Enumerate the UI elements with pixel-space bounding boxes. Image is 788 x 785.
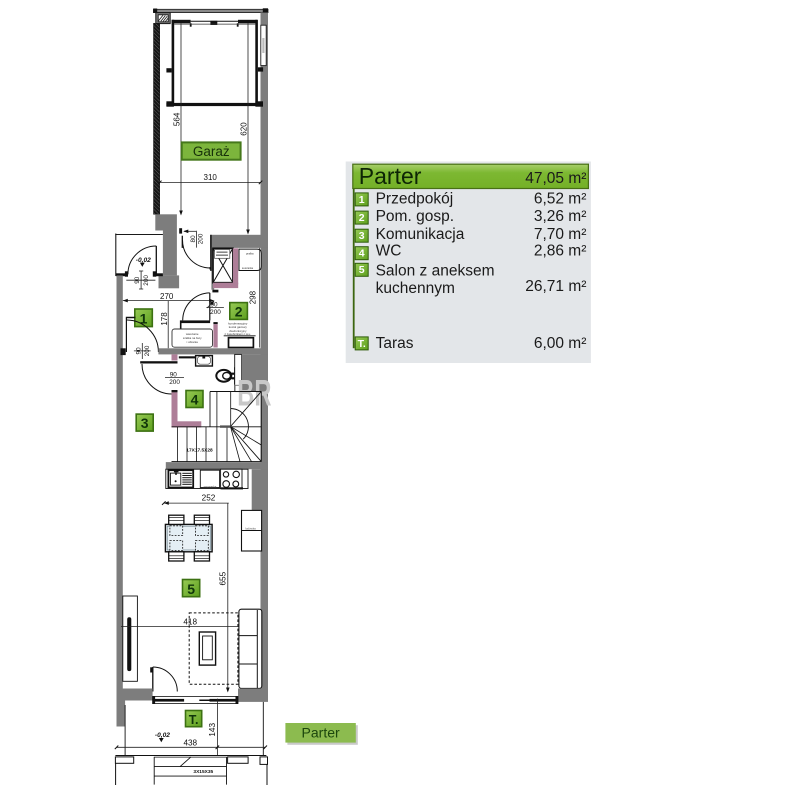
svg-text:200: 200 — [143, 275, 150, 286]
svg-text:suszarka: suszarka — [242, 266, 254, 270]
svg-text:90: 90 — [210, 301, 218, 308]
svg-text:Komunikacja: Komunikacja — [376, 226, 465, 243]
svg-text:6,52 m²: 6,52 m² — [534, 190, 587, 207]
svg-text:WC: WC — [376, 243, 402, 260]
svg-text:Parter: Parter — [359, 163, 422, 189]
svg-text:178: 178 — [160, 312, 169, 326]
svg-text:200: 200 — [197, 233, 204, 244]
svg-text:5: 5 — [187, 581, 195, 597]
svg-text:3: 3 — [359, 230, 365, 242]
svg-text:BR: BR — [237, 372, 271, 414]
svg-text:80: 80 — [190, 235, 197, 243]
svg-text:i ubrania: i ubrania — [187, 340, 198, 344]
svg-text:90: 90 — [136, 347, 143, 355]
svg-text:1: 1 — [140, 311, 148, 327]
svg-text:4: 4 — [359, 248, 365, 260]
svg-text:2,86 m²: 2,86 m² — [534, 243, 587, 260]
svg-text:3: 3 — [141, 415, 149, 431]
svg-text:Pom. gosp.: Pom. gosp. — [376, 208, 454, 225]
svg-text:90: 90 — [170, 371, 178, 378]
svg-text:200: 200 — [144, 345, 151, 356]
svg-text:26,71 m²: 26,71 m² — [525, 278, 586, 295]
svg-text:143: 143 — [208, 723, 217, 737]
svg-text:5: 5 — [359, 264, 365, 276]
svg-text:2: 2 — [359, 212, 365, 224]
svg-text:6,00 m²: 6,00 m² — [534, 335, 587, 352]
svg-text:4: 4 — [191, 392, 199, 408]
svg-text:pralka: pralka — [246, 251, 254, 255]
svg-text:2: 2 — [235, 304, 243, 320]
svg-text:3X15X35: 3X15X35 — [193, 769, 213, 775]
svg-text:17X17.5X28: 17X17.5X28 — [186, 447, 213, 453]
svg-text:Salon z aneksem: Salon z aneksem — [376, 262, 495, 279]
svg-text:kuchennym: kuchennym — [376, 280, 455, 297]
svg-text:Przedpokój: Przedpokój — [376, 190, 454, 207]
svg-text:200: 200 — [210, 309, 221, 316]
svg-text:270: 270 — [160, 292, 174, 301]
svg-text:Taras: Taras — [376, 335, 414, 352]
svg-text:310: 310 — [204, 173, 218, 182]
svg-text:90: 90 — [134, 276, 141, 284]
svg-text:655: 655 — [219, 571, 228, 585]
svg-text:3,26 m²: 3,26 m² — [534, 208, 587, 225]
svg-text:298: 298 — [249, 290, 258, 304]
svg-text:Garaż: Garaż — [193, 144, 230, 159]
svg-text:438: 438 — [183, 739, 197, 748]
svg-text:T.: T. — [358, 338, 366, 350]
svg-text:564: 564 — [172, 112, 181, 126]
svg-text:252: 252 — [202, 494, 216, 503]
svg-text:47,05 m²: 47,05 m² — [525, 170, 586, 187]
svg-text:620: 620 — [240, 122, 249, 136]
svg-text:Parter: Parter — [302, 725, 340, 741]
svg-text:7,70 m²: 7,70 m² — [534, 226, 587, 243]
svg-text:zmywarka: zmywarka — [203, 485, 216, 489]
svg-text:T.: T. — [189, 713, 199, 727]
svg-text:200: 200 — [169, 379, 180, 386]
svg-text:418: 418 — [183, 617, 197, 626]
svg-text:1: 1 — [359, 194, 365, 206]
svg-text:lodówka: lodówka — [245, 526, 256, 530]
